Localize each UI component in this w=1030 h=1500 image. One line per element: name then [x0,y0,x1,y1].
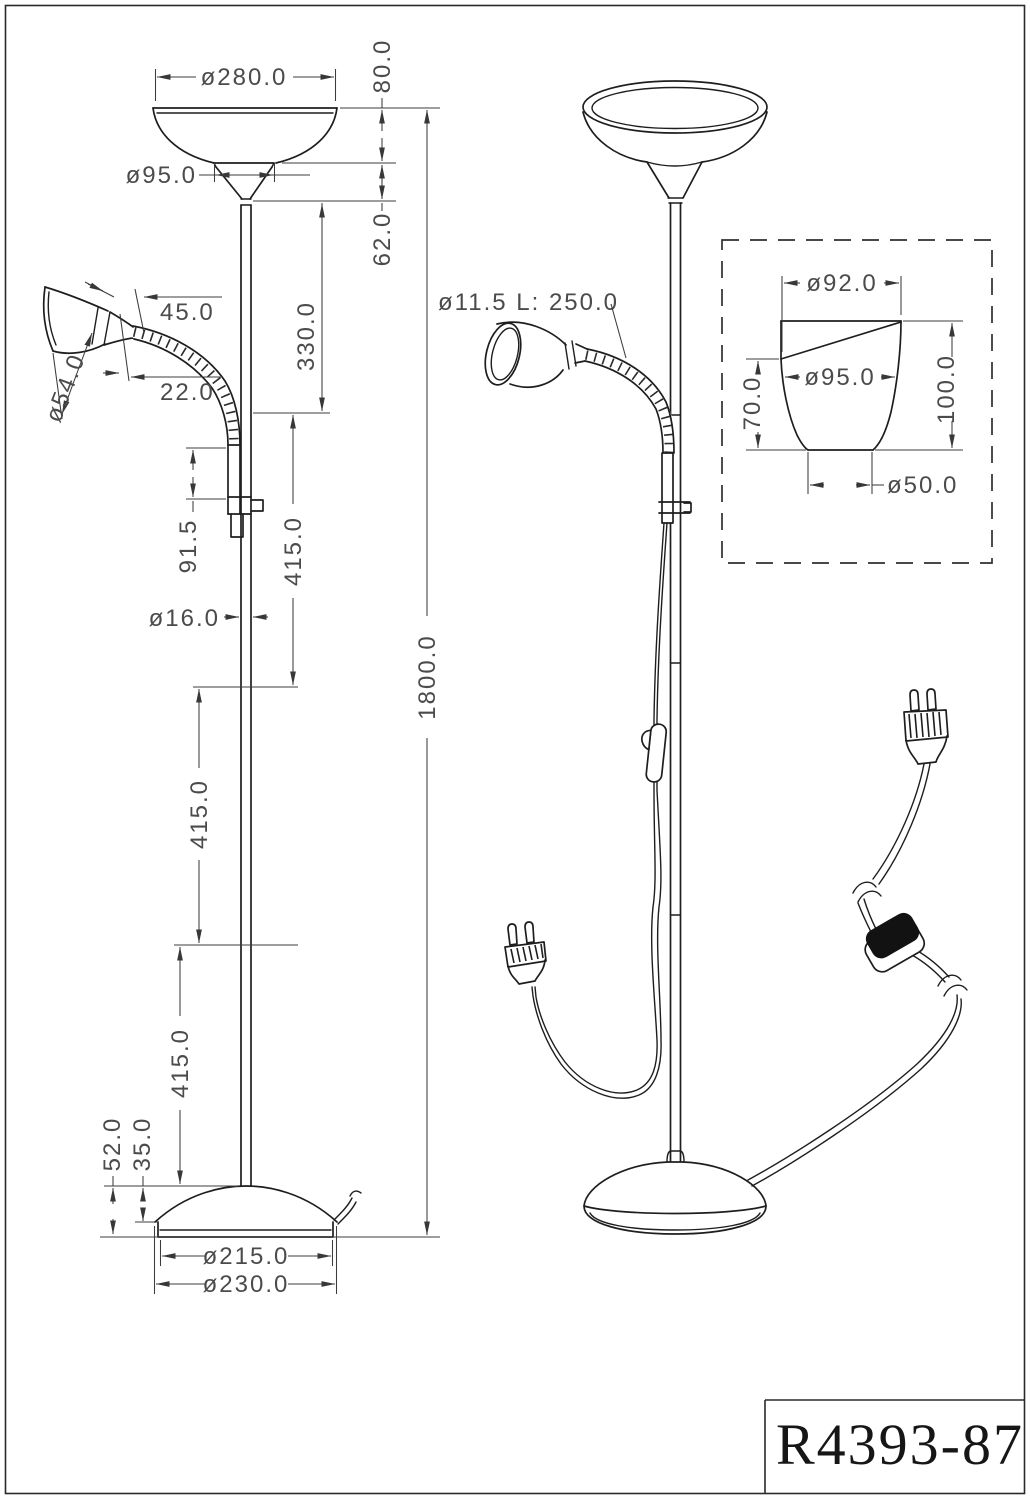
dim-total-height-label: 1800.0 [414,634,441,719]
power-plug-right [904,689,948,764]
dim-neck-diameter-label: ø95.0 [126,162,197,189]
reading-head [479,319,587,388]
dim-base-dome-height-label: 35.0 [129,1117,156,1172]
left-view: ø280.0 80.0 62.0 ø95.0 [40,39,441,1298]
flex-arm-note-label: ø11.5 L: 250.0 [438,289,619,316]
dim-shade-height-label: 80.0 [369,39,396,94]
cable-break-icon [853,882,881,902]
detail-view: ø92.0 ø95.0 70.0 100.0 ø50.0 [722,240,992,563]
dim-base-top-diameter-label: ø215.0 [203,1243,290,1270]
plug-pin-icon [927,689,936,710]
pole [671,203,681,1163]
drawing-sheet: ø280.0 80.0 62.0 ø95.0 [0,0,1030,1500]
dim-pole-segment2-label: 415.0 [186,779,213,849]
dim-spot-neck-label: 22.0 [160,379,215,406]
dim-base-height-label: 52.0 [99,1117,126,1172]
bowl-shade [583,81,767,203]
dim-base-diameter-label: ø230.0 [203,1271,290,1298]
plug-pin-icon [508,924,517,945]
detail-bottom-diameter-label: ø50.0 [887,472,958,499]
dim-pole-diameter-label: ø16.0 [149,605,220,632]
title-block: R4393-87 [765,1400,1025,1494]
dim-funnel-height-label: 62.0 [369,212,396,267]
plug-pin-icon [910,690,919,711]
flex-arm [585,349,674,453]
main-cord [748,764,967,1186]
base [584,1151,766,1234]
dim-upper-segment-label: 330.0 [293,301,320,371]
power-plug-left [505,922,546,984]
dim-spot-length-label: 45.0 [160,299,215,326]
reading-light-cord [532,523,667,1098]
dim-holder-length-label: 91.5 [175,519,202,574]
part-number: R4393-87 [776,1412,1024,1477]
detail-total-height-label: 100.0 [933,354,960,424]
inline-switch [637,723,667,783]
flex-arm-note: ø11.5 L: 250.0 [438,289,626,358]
dim-shade-diameter-label: ø280.0 [201,64,288,91]
bowl-shade-profile [153,108,337,205]
pole-profile [241,205,251,1186]
detail-top-diameter-label: ø92.0 [806,270,877,297]
dim-pole-segment1-label: 415.0 [280,516,307,586]
cable-stub-icon [350,1191,361,1196]
arm-holder [659,453,691,523]
base-profile [155,1186,361,1237]
page-border [6,6,1025,1494]
foot-dimmer-box [857,909,929,975]
dim-spot-diameter-label: ø54.0 [40,350,91,426]
perspective-view: ø11.5 L: 250.0 [438,81,967,1234]
detail-dimensions: ø92.0 ø95.0 70.0 100.0 ø50.0 [739,270,963,499]
detail-front-height-label: 70.0 [739,376,766,431]
technical-drawing: ø280.0 80.0 62.0 ø95.0 [0,0,1030,1500]
detail-max-diameter-label: ø95.0 [804,364,875,391]
switch-rocker-icon [641,729,651,749]
plug-pin-icon [525,922,534,943]
arm-holder-profile [228,445,263,537]
dim-pole-segment3-label: 415.0 [167,1028,194,1098]
